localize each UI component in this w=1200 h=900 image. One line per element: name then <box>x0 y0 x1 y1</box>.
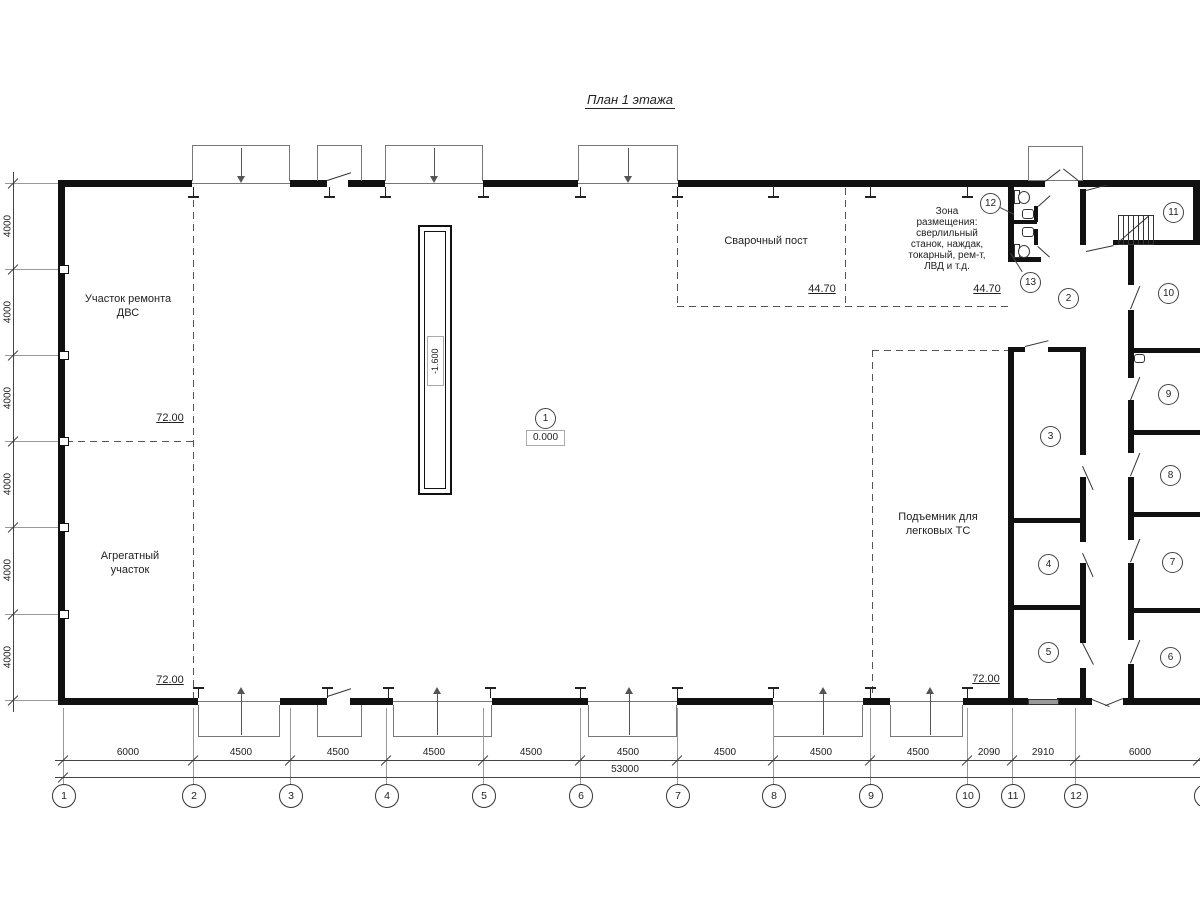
room-bubble: 4 <box>1038 554 1059 575</box>
dimension-value: 4500 <box>520 747 542 758</box>
dimension-value: 4500 <box>810 747 832 758</box>
column-mark <box>773 689 774 698</box>
dimension-value: 6000 <box>1129 747 1151 758</box>
column-mark <box>329 187 330 196</box>
dimension-value: 4500 <box>714 747 736 758</box>
column-mark <box>59 523 69 532</box>
extension-line <box>483 708 484 786</box>
entry-arrow <box>241 148 242 176</box>
extension-line <box>870 708 871 786</box>
opening-line <box>385 183 483 184</box>
entry-arrow <box>823 694 824 735</box>
pit-elevation-mark: -1.600 <box>427 336 444 386</box>
area-value: 72.00 <box>156 412 184 424</box>
door-swing <box>1130 453 1140 477</box>
column-mark <box>198 689 199 698</box>
axis-bubble: 1 <box>52 784 76 808</box>
wall <box>1128 400 1134 453</box>
axis-bubble: 4 <box>375 784 399 808</box>
column-mark <box>385 187 386 196</box>
vestibule-outline <box>1028 146 1083 181</box>
area-value: 72.00 <box>972 673 1000 685</box>
wall <box>1034 206 1038 222</box>
room-bubble: 11 <box>1163 202 1184 223</box>
entry-arrow <box>434 148 435 176</box>
dimension-value: 4000 <box>3 387 14 409</box>
dashed-boundary <box>677 188 678 306</box>
area-value: 72.00 <box>156 674 184 686</box>
gate-outline <box>588 705 677 737</box>
dimension-value: 4000 <box>3 646 14 668</box>
opening-line <box>890 701 963 702</box>
room-bubble: 3 <box>1040 426 1061 447</box>
wall <box>1123 698 1200 705</box>
opening-line <box>588 701 677 702</box>
wall <box>492 698 588 705</box>
wall <box>58 698 198 705</box>
door-swing <box>1130 377 1140 401</box>
extension-line <box>677 708 678 786</box>
axis-bubble: 7 <box>666 784 690 808</box>
wall <box>963 698 1028 705</box>
wall <box>1193 187 1200 245</box>
wall <box>1134 430 1200 435</box>
wall <box>1134 512 1200 517</box>
wall <box>1128 664 1134 698</box>
axis-bubble: 10 <box>956 784 980 808</box>
door-swing <box>1038 195 1051 206</box>
dimension-value: 4000 <box>3 215 14 237</box>
extension-line <box>967 708 968 786</box>
entry-arrow-head <box>625 687 633 694</box>
wall <box>58 180 192 187</box>
room-label: Агрегатный участок <box>101 549 159 578</box>
wall <box>290 180 327 187</box>
dimension-value: 4500 <box>907 747 929 758</box>
dashed-boundary <box>872 350 873 698</box>
room-bubble: 9 <box>1158 384 1179 405</box>
entry-arrow-head <box>237 687 245 694</box>
axis-bubble: 11 <box>1001 784 1025 808</box>
dimension-line <box>55 760 1200 761</box>
dashed-boundary <box>193 188 194 698</box>
stairs <box>1118 215 1154 245</box>
column-mark <box>580 187 581 196</box>
entry-arrow <box>437 694 438 735</box>
room-bubble: 13 <box>1020 272 1041 293</box>
gate-leaf <box>1028 699 1059 705</box>
gate-outline <box>317 705 362 737</box>
axis-bubble: 8 <box>762 784 786 808</box>
door-swing <box>1130 640 1140 664</box>
room-bubble: 6 <box>1160 647 1181 668</box>
axis-bubble: 13 <box>1194 784 1200 808</box>
room-label: Сварочный пост <box>724 234 807 248</box>
wall <box>1128 477 1134 540</box>
room-bubble: 7 <box>1162 552 1183 573</box>
dimension-line <box>55 777 1200 778</box>
wall <box>280 698 327 705</box>
wall <box>1080 668 1086 698</box>
column-mark <box>870 689 871 698</box>
wall <box>350 698 393 705</box>
column-mark <box>773 187 774 196</box>
area-value: 44.70 <box>808 283 836 295</box>
drawing-title: План 1 этажа <box>585 92 675 109</box>
gate-outline <box>773 705 863 737</box>
wall <box>1080 563 1086 643</box>
wall <box>1128 563 1134 640</box>
entry-arrow-head <box>624 176 632 183</box>
wall <box>1134 348 1200 353</box>
dashed-boundary <box>66 441 193 442</box>
gate-outline <box>198 705 280 737</box>
axis-bubble: 12 <box>1064 784 1088 808</box>
wall <box>1128 245 1134 285</box>
dimension-total: 53000 <box>611 764 639 775</box>
dimension-value: 2090 <box>978 747 1000 758</box>
entry-arrow <box>930 694 931 735</box>
room-label: Зона размещения: сверлильный станок, наж… <box>908 206 985 272</box>
axis-bubble: 5 <box>472 784 496 808</box>
entry-arrow-head <box>433 687 441 694</box>
column-mark <box>388 689 389 698</box>
dimension-value: 4500 <box>230 747 252 758</box>
wall <box>1078 180 1200 187</box>
entry-arrow <box>241 694 242 735</box>
extension-line <box>193 708 194 786</box>
dimension-value: 4500 <box>423 747 445 758</box>
entry-arrow-head <box>430 176 438 183</box>
sink-icon <box>1022 227 1034 237</box>
wall <box>483 180 578 187</box>
door-swing <box>1130 539 1140 563</box>
wall <box>1080 189 1086 245</box>
room-bubble: 8 <box>1160 465 1181 486</box>
dashed-boundary <box>845 188 846 306</box>
column-mark <box>59 610 69 619</box>
entry-arrow <box>628 148 629 176</box>
sink-icon <box>1134 354 1145 363</box>
room-bubble: 1 <box>535 408 556 429</box>
door-swing <box>1037 246 1050 257</box>
dimension-value: 4500 <box>617 747 639 758</box>
entry-arrow-head <box>237 176 245 183</box>
column-mark <box>580 689 581 698</box>
column-mark <box>967 187 968 196</box>
wall <box>1134 608 1200 613</box>
column-mark <box>490 689 491 698</box>
room-bubble: 2 <box>1058 288 1079 309</box>
axis-bubble: 2 <box>182 784 206 808</box>
toilet-icon <box>1018 245 1030 258</box>
column-mark <box>59 265 69 274</box>
room-bubble: 10 <box>1158 283 1179 304</box>
extension-line <box>1012 708 1013 786</box>
wall <box>1057 698 1092 705</box>
extension-line <box>1075 708 1076 786</box>
door-swing <box>1086 245 1114 252</box>
opening-line <box>198 701 280 702</box>
column-mark <box>870 187 871 196</box>
sink-icon <box>1022 209 1034 219</box>
floor-plan: План 1 этажа <box>0 0 1200 900</box>
wall <box>1034 229 1038 245</box>
door-swing <box>1082 643 1094 665</box>
axis-bubble: 6 <box>569 784 593 808</box>
column-mark <box>59 437 69 446</box>
column-mark <box>677 689 678 698</box>
extension-line <box>386 708 387 786</box>
door-swing <box>1105 698 1123 706</box>
opening-line <box>192 183 290 184</box>
entry-arrow-head <box>819 687 827 694</box>
gate-outline <box>393 705 492 737</box>
entry-arrow-head <box>926 687 934 694</box>
extension-line <box>290 708 291 786</box>
dashed-boundary <box>872 350 1008 351</box>
wall <box>1080 477 1086 542</box>
door-swing <box>1092 699 1110 707</box>
wall <box>678 180 1045 187</box>
column-mark <box>59 351 69 360</box>
dashed-boundary <box>677 306 1008 307</box>
column-mark <box>483 187 484 196</box>
wall <box>1128 310 1134 378</box>
entry-arrow <box>629 694 630 735</box>
pit-elevation-value: -1.600 <box>429 337 442 385</box>
room-label: Подъемник для легковых ТС <box>898 510 977 539</box>
floor-elevation-mark: 0.000 <box>526 430 565 446</box>
dimension-value: 6000 <box>117 747 139 758</box>
opening-line <box>578 183 678 184</box>
column-mark <box>677 187 678 196</box>
door-swing <box>1025 340 1049 347</box>
dimension-value: 2910 <box>1032 747 1054 758</box>
area-value: 44.70 <box>973 283 1001 295</box>
toilet-icon <box>1018 191 1030 204</box>
room-bubble: 5 <box>1038 642 1059 663</box>
wall <box>1014 347 1025 352</box>
wall <box>677 698 773 705</box>
opening-line <box>773 701 863 702</box>
room-label: Участок ремонта ДВС <box>85 292 171 321</box>
dimension-value: 4000 <box>3 301 14 323</box>
wall <box>1008 518 1086 523</box>
column-mark <box>967 689 968 698</box>
wall <box>863 698 890 705</box>
column-mark <box>327 689 328 698</box>
axis-bubble: 3 <box>279 784 303 808</box>
column-mark <box>193 187 194 196</box>
dimension-value: 4000 <box>3 559 14 581</box>
dimension-value: 4000 <box>3 473 14 495</box>
extension-line <box>580 708 581 786</box>
axis-bubble: 9 <box>859 784 883 808</box>
gate-outline <box>890 705 963 737</box>
door-swing <box>327 688 351 697</box>
wall <box>348 180 385 187</box>
wall <box>1080 352 1086 455</box>
wall <box>1008 605 1086 610</box>
opening-line <box>393 701 492 702</box>
extension-line <box>773 708 774 786</box>
dimension-value: 4500 <box>327 747 349 758</box>
door-swing <box>1130 286 1140 310</box>
